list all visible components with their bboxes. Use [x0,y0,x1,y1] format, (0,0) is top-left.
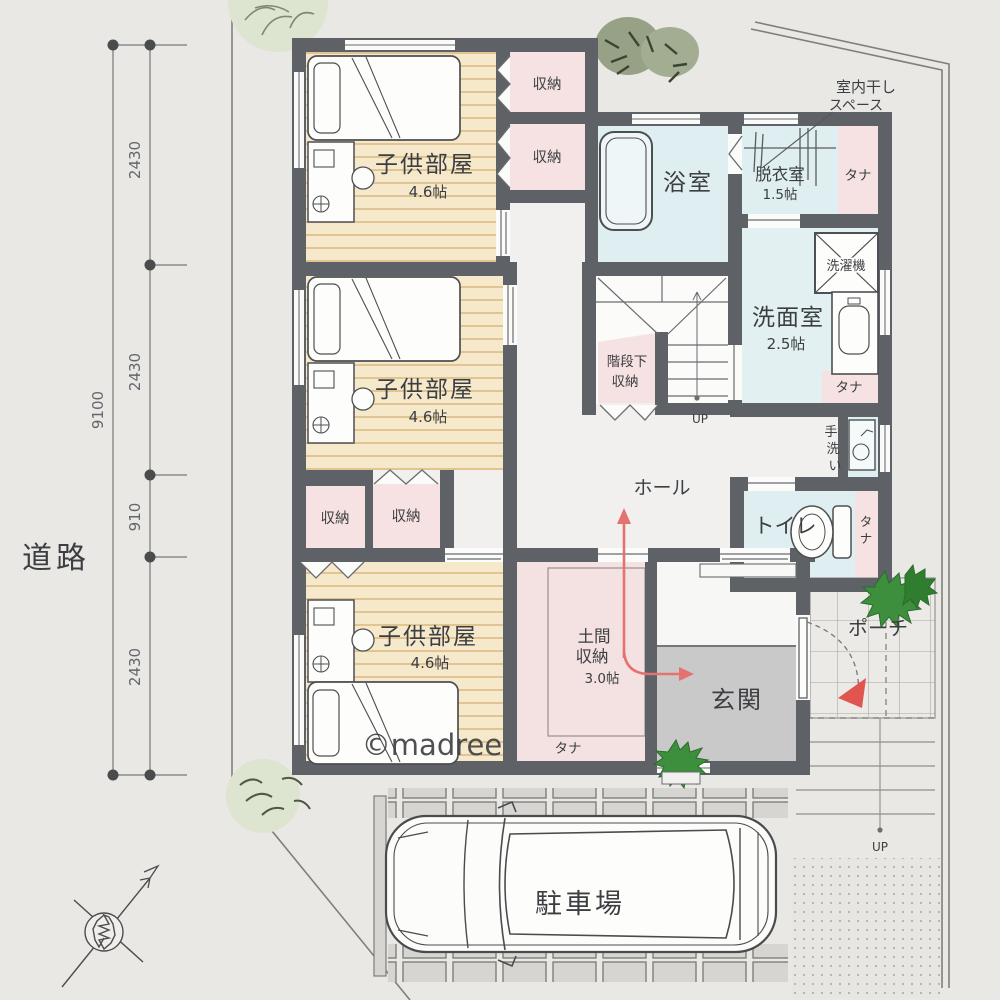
watermark: ©madree [362,728,502,762]
gravel-ground [792,858,940,998]
room-label-doma-2: 収納 [576,647,609,666]
shelf-label-toilet-char1: タ [860,514,873,529]
shoe-shelf-icon [700,564,796,577]
drying-label-1: 室内干し [836,78,896,96]
bath-door [728,134,742,174]
room-label-washroom: 洗面室 [752,305,824,331]
kids1-door [496,210,510,256]
closet-label-b1: 収納 [321,510,350,527]
room-size-kids2: 4.6帖 [409,408,448,426]
vanity-icon [832,292,878,374]
paver-strip-left [374,796,386,976]
handwash-char2: 洗 [826,442,839,457]
washroom-door [728,345,742,400]
room-size-dressing: 1.5帖 [763,187,798,203]
room-label-bath: 浴室 [663,170,713,196]
handwash-basin-icon [849,420,875,470]
room-size-doma: 3.0帖 [585,671,620,687]
room-label-toilet: トイレ [754,514,817,538]
handwash-char3: い [828,459,841,474]
dim-seg-2: 2430 [126,353,144,391]
bed-icon [308,56,460,140]
shelf-label-washroom: タナ [836,380,863,396]
room-label-entrance: 玄関 [711,686,763,714]
closet-label-a2: 収納 [533,149,562,166]
parking-area: 駐車場 [374,788,788,982]
room-size-kids1: 4.6帖 [409,183,448,201]
dim-seg-4: 2430 [126,648,144,686]
toilet-door [748,477,795,491]
entrance-hall-door [720,548,790,562]
stairs-up-label: UP [692,412,708,426]
dim-seg-1: 2430 [126,141,144,179]
washer-label: 洗濯機 [826,259,865,274]
floorplan-svg: 2430 2430 910 2430 9100 道路 [0,0,1000,1000]
porch-up-label: UP [872,840,888,854]
room-label-dressing: 脱衣室 [755,165,805,184]
paver-row-top [388,788,788,818]
kids3-door [445,548,503,562]
floorplan-canvas: 2430 2430 910 2430 9100 道路 [0,0,1000,1000]
room-size-washroom: 2.5帖 [767,335,806,353]
room-label-parking: 駐車場 [535,889,625,920]
bed-icon [308,277,460,361]
kids2-door [503,285,517,345]
window [294,72,304,168]
dim-seg-3: 910 [126,503,144,532]
room-label-porch: ポーチ [848,616,908,640]
room-label-doma-1: 土間 [578,627,611,646]
room-label-kids3: 子供部屋 [378,624,478,650]
room-label-kids1: 子供部屋 [375,152,475,178]
understairs-label-1: 階段下 [607,354,648,370]
bathtub-icon [600,132,652,230]
road-label: 道路 [22,541,90,576]
understairs-label-2: 収納 [612,374,639,390]
drying-label-2: スペース [829,98,883,114]
dressing-door [748,214,800,228]
car-icon [386,802,776,966]
shelf-label-dressing: タナ [845,168,872,184]
dim-total: 9100 [89,391,107,429]
room-label-kids2: 子供部屋 [375,377,475,403]
closet-label-a1: 収納 [533,76,562,93]
room-size-kids3: 4.6帖 [411,654,450,672]
room-label-hall: ホール [633,477,690,499]
closet-label-b2: 収納 [392,508,421,525]
handwash-char1: 手 [824,425,837,440]
shelf-label-toilet-char2: ナ [860,531,873,546]
shelf-label-doma: タナ [555,741,582,757]
